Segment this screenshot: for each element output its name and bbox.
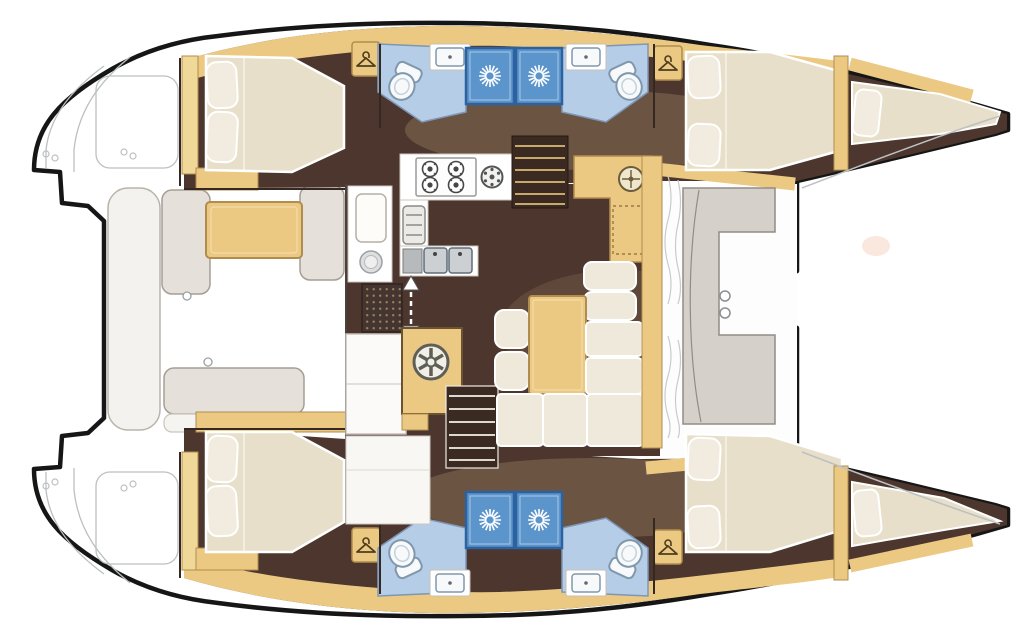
headboard-shelf [182, 56, 198, 174]
dinette-table [529, 296, 586, 394]
shower-sunburst-icon [528, 65, 550, 87]
forward-locker [346, 436, 430, 524]
cockpit-side-bench-left [162, 190, 210, 294]
stove-burner-icon [423, 162, 438, 177]
cutting-board [356, 194, 386, 242]
cockpit-side-bench-right [300, 186, 344, 280]
stove-burner-icon [449, 162, 464, 177]
stool [495, 310, 529, 348]
foredeck-lines [802, 116, 1000, 524]
sink-icon [430, 570, 470, 596]
port-shower-stalls [466, 48, 562, 104]
cup-holder [720, 308, 730, 318]
deck-fitting-blob [862, 236, 890, 256]
cockpit-transom-bench [108, 188, 160, 430]
pillow [206, 435, 238, 483]
cup-holder [720, 291, 730, 301]
salon-side-cabinet [642, 156, 662, 448]
wok-burner-icon [482, 167, 503, 188]
pillow [687, 55, 721, 99]
floor-grate-icon [362, 284, 402, 332]
starboard-shower-stalls [466, 492, 562, 548]
pillow [687, 505, 721, 549]
shower-sunburst-icon [479, 509, 501, 531]
sink-icon [566, 44, 606, 70]
pillow [206, 111, 239, 163]
shower-sunburst-icon [479, 65, 501, 87]
deck-fitting [204, 358, 212, 366]
sofa-cushion [586, 322, 642, 356]
pillow [206, 61, 238, 109]
pillow [687, 123, 721, 167]
pillow [852, 489, 883, 537]
companionway-stairs-port [512, 136, 568, 208]
compass-icon [619, 167, 643, 191]
bow-bulkhead [834, 56, 848, 170]
stool [495, 352, 529, 390]
pillow [852, 89, 883, 137]
pillow [206, 485, 239, 537]
sofa-cushion [497, 394, 543, 446]
cockpit-table [206, 202, 302, 258]
sofa-corner-cushion [587, 394, 643, 446]
stove-burner-icon [423, 178, 438, 193]
sink-icon [430, 44, 470, 70]
deck-fitting [183, 292, 191, 300]
drainer [403, 249, 422, 273]
stove-burner-icon [449, 178, 464, 193]
oven-icon [403, 206, 425, 244]
spoke-wheel-icon [414, 345, 448, 379]
shower-sunburst-icon [528, 509, 550, 531]
cockpit-aft-bench [164, 368, 304, 414]
nav-seat [584, 292, 636, 320]
pillow [687, 437, 721, 481]
sofa-cushion [586, 358, 642, 394]
bow-bulkhead [834, 466, 848, 580]
sink-icon [566, 570, 606, 596]
catamaran-floor-plan [0, 0, 1024, 640]
nav-seat [584, 262, 636, 290]
sofa-cushion [543, 394, 587, 446]
companionway-stairs-starboard [446, 386, 498, 468]
floor-plan-canvas: Catamaran interior layout — top-down flo… [0, 0, 1024, 640]
